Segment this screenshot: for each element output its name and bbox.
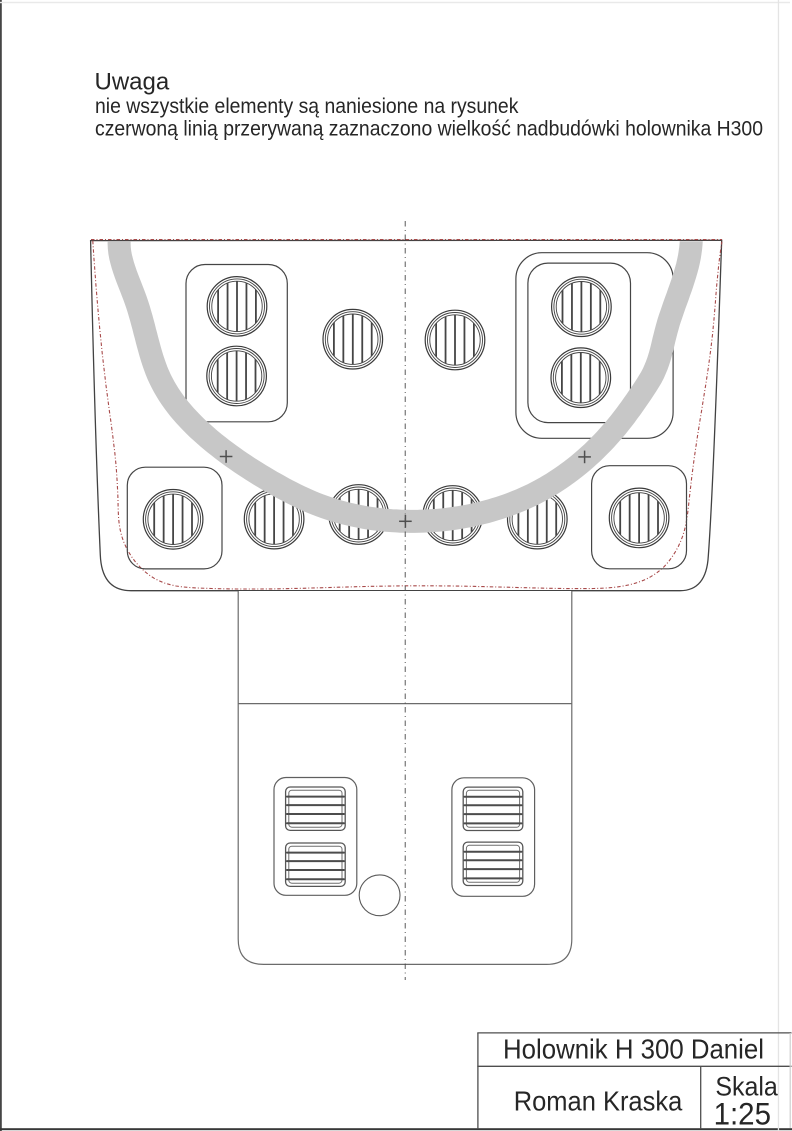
svg-text:Uwaga: Uwaga bbox=[95, 68, 170, 95]
svg-text:Roman Kraska: Roman Kraska bbox=[514, 1086, 683, 1117]
svg-text:Holownik H 300 Daniel: Holownik H 300 Daniel bbox=[503, 1034, 764, 1065]
svg-text:1:25: 1:25 bbox=[714, 1096, 771, 1131]
svg-text:nie wszystkie elementy są nani: nie wszystkie elementy są naniesione na … bbox=[95, 95, 519, 118]
svg-text:czerwoną linią przerywaną zazn: czerwoną linią przerywaną zaznaczono wie… bbox=[95, 118, 763, 141]
